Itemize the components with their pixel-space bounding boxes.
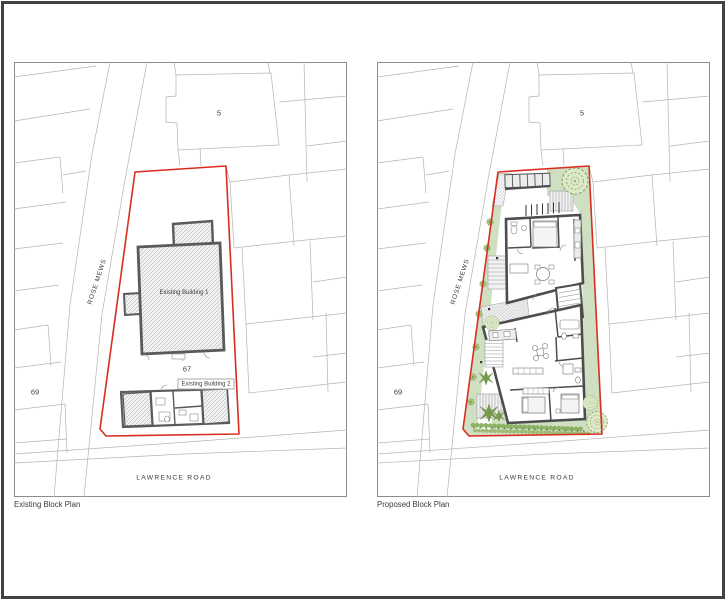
drawing-sheet: 5 69 67 Existing Building 1 Existing Bui… <box>0 0 726 600</box>
proposed-plan-panel: 5 69 ROSE MEWS LAWRENCE ROAD <box>377 62 710 497</box>
parcel-5-label: 5 <box>580 109 584 117</box>
parcel-69-label: 69 <box>31 388 39 396</box>
existing-plan-caption: Existing Block Plan <box>14 500 80 509</box>
existing-building-1-label: Existing Building 1 <box>159 290 208 296</box>
parcel-5-label: 5 <box>217 109 221 117</box>
existing-plan-panel: 5 69 67 Existing Building 1 Existing Bui… <box>14 62 347 497</box>
existing-plan-map-graphic <box>14 62 347 497</box>
parcel-67-label: 67 <box>183 365 191 373</box>
proposed-plan-map-graphic <box>377 62 710 497</box>
proposed-plan-caption: Proposed Block Plan <box>377 500 449 509</box>
parcel-69-label: 69 <box>394 388 402 396</box>
existing-building-2-label: Existing Building 2 <box>177 379 234 390</box>
lawrence-road-label: LAWRENCE ROAD <box>136 476 211 483</box>
existing-buildings-group <box>121 221 229 427</box>
lawrence-road-label: LAWRENCE ROAD <box>499 476 574 483</box>
